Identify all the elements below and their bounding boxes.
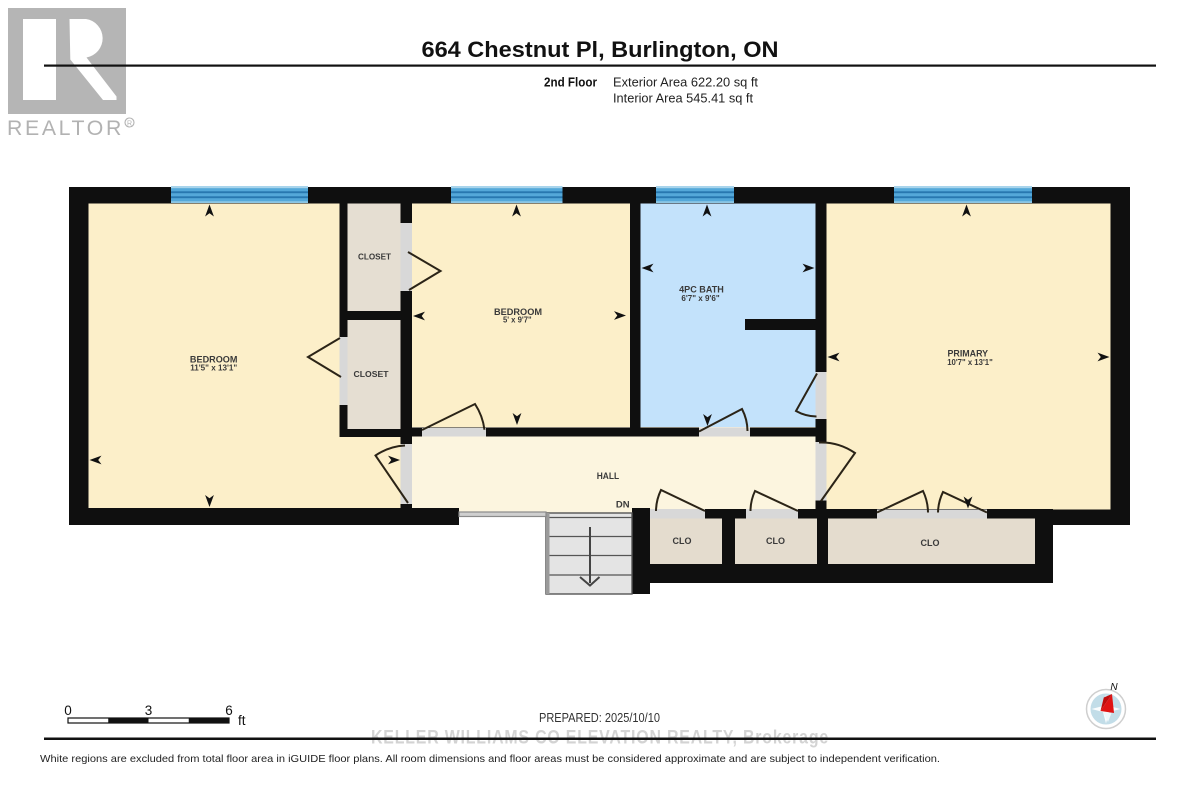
svg-text:2nd Floor: 2nd Floor: [544, 75, 597, 90]
svg-text:664 Chestnut Pl, Burlington, O: 664 Chestnut Pl, Burlington, ON: [422, 37, 779, 62]
svg-text:PREPARED: 2025/10/10: PREPARED: 2025/10/10: [539, 711, 660, 725]
svg-text:White regions are excluded fro: White regions are excluded from total fl…: [40, 753, 940, 765]
svg-text:ft: ft: [238, 713, 246, 728]
svg-text:6'7" x 9'6": 6'7" x 9'6": [681, 293, 719, 303]
svg-text:5' x 9'7": 5' x 9'7": [503, 314, 532, 324]
svg-text:CLO: CLO: [921, 538, 940, 548]
svg-text:10'7" x 13'1": 10'7" x 13'1": [947, 357, 993, 367]
svg-text:11'5" x 13'1": 11'5" x 13'1": [190, 362, 237, 372]
svg-text:CLO: CLO: [673, 536, 692, 546]
svg-text:CLOSET: CLOSET: [354, 369, 390, 379]
svg-text:CLOSET: CLOSET: [358, 252, 392, 262]
svg-text:DN: DN: [616, 499, 630, 509]
svg-text:Interior Area 545.41 sq ft: Interior Area 545.41 sq ft: [613, 91, 753, 106]
svg-text:0: 0: [64, 703, 72, 718]
svg-text:REALTOR: REALTOR: [7, 117, 124, 140]
svg-text:3: 3: [145, 703, 153, 718]
svg-text:Exterior Area 622.20 sq ft: Exterior Area 622.20 sq ft: [613, 75, 758, 90]
svg-text:HALL: HALL: [597, 471, 620, 481]
svg-text:N: N: [1110, 682, 1118, 693]
svg-text:R: R: [127, 121, 132, 128]
svg-text:6: 6: [225, 703, 233, 718]
svg-text:CLO: CLO: [766, 536, 785, 546]
